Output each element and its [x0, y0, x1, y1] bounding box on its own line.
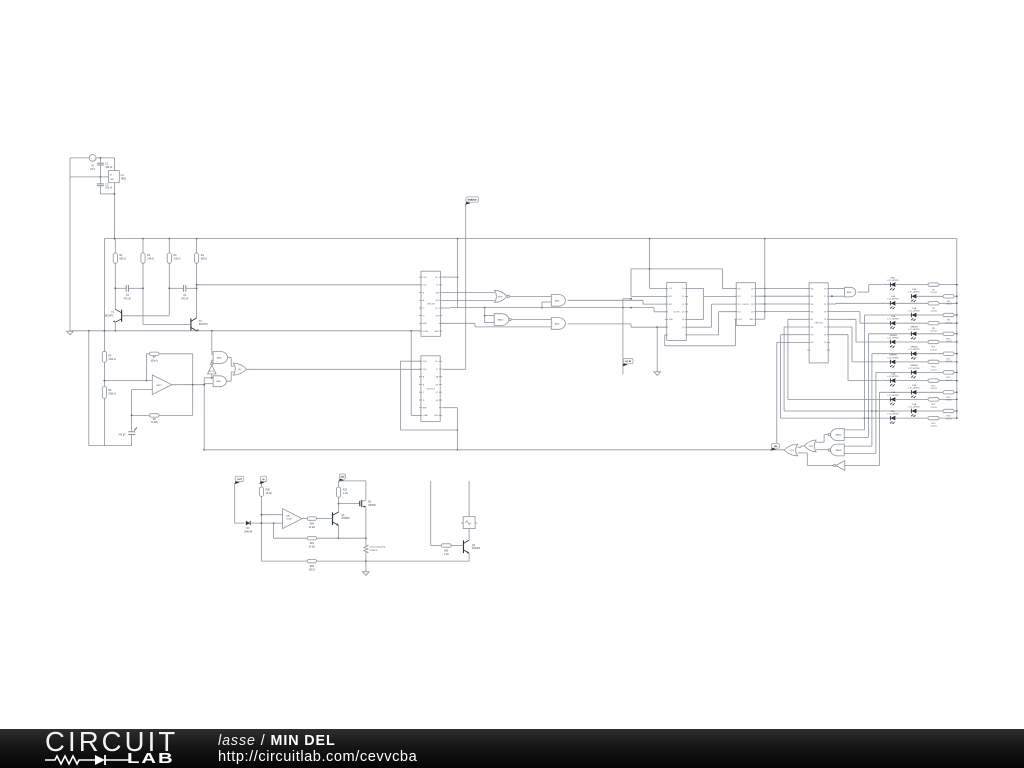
svg-text:D1A: D1A — [891, 372, 896, 375]
svg-text:L-TL-WYRD: L-TL-WYRD — [908, 349, 920, 351]
svg-text:R23: R23 — [343, 490, 348, 492]
svg-text:AND: AND — [217, 356, 222, 359]
svg-text:1 kΩ: 1 kΩ — [343, 493, 348, 495]
svg-text:L-TL-WYRD: L-TL-WYRD — [908, 329, 920, 331]
svg-text:NOR: NOR — [498, 296, 503, 298]
svg-text:R13: R13 — [932, 367, 937, 369]
svg-text:L-TL-WYRD: L-TL-WYRD — [887, 395, 899, 397]
svg-text:D1A: D1A — [912, 384, 917, 387]
svg-text:2.2k Ω: 2.2k Ω — [930, 331, 937, 333]
svg-text:Q3: Q3 — [682, 312, 685, 314]
svg-text:L-TL-WYRD: L-TL-WYRD — [887, 299, 899, 301]
svg-text:sp for bakhoring: sp for bakhoring — [370, 546, 386, 549]
svg-text:IRF530: IRF530 — [368, 505, 376, 507]
svg-text:C3: C3 — [126, 295, 130, 297]
svg-text:Y4: Y4 — [824, 319, 826, 321]
svg-text:470 uF: 470 uF — [124, 299, 132, 301]
svg-text:100k Ω: 100k Ω — [108, 359, 116, 361]
svg-text:2.2k Ω: 2.2k Ω — [945, 400, 952, 402]
svg-text:Q0: Q0 — [682, 288, 685, 290]
svg-text:Q0: Q0 — [751, 288, 754, 290]
svg-text:330 uF: 330 uF — [105, 167, 113, 169]
svg-text:ON: ON — [774, 446, 778, 448]
svg-text:100k Ω: 100k Ω — [108, 394, 116, 396]
svg-text:74HC14: 74HC14 — [742, 304, 750, 306]
svg-text:Y2: Y2 — [824, 304, 826, 306]
svg-text:24V: 24V — [341, 476, 345, 479]
svg-text:ENABLE: ENABLE — [468, 199, 478, 202]
svg-text:L-TL-WYRD: L-TL-WYRD — [908, 292, 920, 294]
svg-text:Y5: Y5 — [824, 327, 826, 329]
svg-text:C4: C4 — [183, 295, 187, 297]
svg-text:680 Ω: 680 Ω — [120, 259, 126, 261]
svg-text:D2: D2 — [738, 304, 740, 306]
svg-text:E2: E2 — [811, 327, 813, 329]
svg-text:R20: R20 — [266, 490, 271, 492]
svg-text:Q1: Q1 — [682, 296, 685, 298]
svg-text:L-TL-WYRD: L-TL-WYRD — [908, 368, 920, 370]
svg-text:10 kΩ: 10 kΩ — [266, 493, 272, 495]
svg-text:NAND: NAND — [497, 318, 503, 321]
svg-text:10 MΩ: 10 MΩ — [151, 422, 158, 424]
svg-text:2.2k Ω: 2.2k Ω — [930, 407, 937, 409]
svg-text:AND: AND — [555, 299, 560, 302]
svg-text:2.2k Ω: 2.2k Ω — [930, 311, 937, 313]
svg-text:R8: R8 — [947, 320, 951, 322]
svg-text:2.2k Ω: 2.2k Ω — [930, 426, 937, 428]
svg-text:1N4148: 1N4148 — [244, 531, 253, 533]
svg-text:R21: R21 — [310, 543, 315, 545]
svg-text:D0: D0 — [738, 288, 740, 290]
svg-text:A2: A2 — [811, 303, 813, 306]
svg-text:20 kΩ: 20 kΩ — [309, 547, 315, 549]
svg-text:10 kΩ: 10 kΩ — [309, 527, 315, 529]
svg-text:R6: R6 — [947, 301, 951, 303]
svg-text:Y6: Y6 — [824, 335, 826, 337]
svg-text:C1: C1 — [105, 164, 109, 166]
svg-text:R5: R5 — [108, 355, 112, 357]
svg-text:L-TL-WYRD: L-TL-WYRD — [887, 414, 899, 416]
svg-text:R5: R5 — [932, 289, 936, 291]
svg-text:R22: R22 — [310, 566, 315, 568]
svg-text:LOAD: LOAD — [423, 414, 429, 417]
svg-text:R24: R24 — [310, 524, 315, 526]
svg-text:Q2: Q2 — [682, 304, 685, 306]
svg-text:R16: R16 — [947, 397, 952, 399]
svg-text:NOT1: NOT1 — [209, 371, 214, 373]
svg-text:M1: M1 — [368, 502, 372, 504]
svg-text:Y7: Y7 — [824, 342, 826, 344]
svg-text:6.966 Ω: 6.966 Ω — [370, 550, 378, 552]
svg-text:470 pF: 470 pF — [118, 434, 126, 436]
svg-text:200 Ω: 200 Ω — [309, 569, 315, 571]
svg-text:L-TL-WYRD: L-TL-WYRD — [887, 319, 899, 321]
svg-text:2.2k Ω: 2.2k Ω — [945, 322, 952, 324]
svg-text:L-TL-WYRD: L-TL-WYRD — [887, 357, 899, 359]
svg-text:NAND: NAND — [836, 449, 842, 452]
svg-text:CMP1: CMP1 — [156, 385, 162, 387]
svg-text:Q1: Q1 — [342, 515, 346, 517]
svg-text:GND: GND — [110, 179, 115, 181]
svg-text:R12: R12 — [947, 358, 952, 360]
svg-text:A3: A3 — [811, 310, 813, 313]
svg-text:D1A: D1A — [912, 403, 917, 406]
svg-text:R18: R18 — [947, 416, 952, 418]
svg-text:OUT: OUT — [237, 479, 242, 481]
svg-text:2.2k Ω: 2.2k Ω — [945, 418, 952, 420]
svg-text:3.9k Ω: 3.9k Ω — [174, 259, 181, 261]
svg-text:74HC595: 74HC595 — [814, 323, 823, 325]
svg-text:2.2k Ω: 2.2k Ω — [945, 304, 952, 306]
svg-text:R7: R7 — [932, 308, 936, 310]
svg-text:2.2k Ω: 2.2k Ω — [930, 369, 937, 371]
svg-text:R3: R3 — [174, 255, 178, 257]
svg-text:D1A: D1A — [912, 288, 917, 291]
svg-text:AND: AND — [555, 322, 560, 325]
svg-text:AC IN: AC IN — [625, 360, 631, 363]
svg-text:L-TL-WYRD: L-TL-WYRD — [887, 280, 899, 282]
svg-text:7805: 7805 — [121, 178, 127, 181]
svg-text:R9: R9 — [932, 328, 936, 330]
svg-text:R1: R1 — [120, 255, 124, 257]
svg-text:D1: D1 — [247, 528, 251, 530]
svg-text:2.2k Ω: 2.2k Ω — [930, 292, 937, 294]
svg-text:Q3: Q3 — [751, 311, 754, 313]
svg-text:R10: R10 — [947, 339, 952, 341]
svg-text:+: + — [154, 380, 156, 382]
svg-text:Vcc: Vcc — [435, 361, 438, 363]
svg-text:AND: AND — [847, 291, 852, 294]
svg-text:C2: C2 — [105, 184, 109, 186]
svg-text:OR: OR — [238, 369, 242, 371]
svg-text:2.2k Ω: 2.2k Ω — [930, 388, 937, 390]
svg-text:-: - — [154, 391, 155, 393]
svg-text:2N3904: 2N3904 — [472, 548, 481, 550]
svg-text:L-TL-WYRD: L-TL-WYRD — [908, 310, 920, 312]
svg-text:R25: R25 — [444, 551, 449, 553]
svg-text:Vcc: Vcc — [435, 277, 438, 279]
svg-text:TL082: TL082 — [286, 519, 293, 521]
svg-text:NAND: NAND — [836, 434, 842, 437]
svg-text:470 uF: 470 uF — [181, 299, 189, 301]
svg-text:100 uF: 100 uF — [105, 188, 113, 190]
svg-text:74HC163: 74HC163 — [426, 388, 435, 390]
svg-text:Y0: Y0 — [824, 288, 826, 290]
svg-text:100k Ω: 100k Ω — [151, 361, 159, 363]
svg-text:R19: R19 — [932, 423, 937, 425]
svg-text:R2: R2 — [147, 255, 151, 257]
svg-text:D1: D1 — [738, 296, 740, 298]
svg-text:R11: R11 — [932, 347, 937, 349]
svg-text:D1A: D1A — [891, 315, 896, 318]
svg-text:OA1: OA1 — [286, 514, 291, 517]
svg-text:R6: R6 — [108, 390, 112, 392]
svg-text:Q2: Q2 — [751, 304, 754, 306]
svg-text:R15: R15 — [932, 385, 937, 387]
svg-text:1 kΩ: 1 kΩ — [444, 554, 449, 556]
svg-text:2.2k Ω: 2.2k Ω — [945, 341, 952, 343]
svg-text:680 Ω: 680 Ω — [201, 259, 207, 261]
svg-text:AND: AND — [216, 380, 221, 383]
svg-text:BC547C: BC547C — [105, 314, 114, 317]
svg-text:2.2k Ω: 2.2k Ω — [945, 380, 952, 382]
svg-text:24 V: 24 V — [90, 168, 95, 171]
svg-text:Y1: Y1 — [824, 296, 826, 298]
svg-text:R4: R4 — [201, 255, 205, 257]
svg-text:E3: E3 — [811, 335, 813, 337]
svg-text:74HC163: 74HC163 — [426, 304, 435, 306]
svg-text:L-TL-WYRD: L-TL-WYRD — [908, 406, 920, 408]
svg-text:D3: D3 — [738, 311, 740, 313]
svg-text:2N3904: 2N3904 — [342, 518, 351, 520]
svg-text:L-TL-WYRD: L-TL-WYRD — [908, 388, 920, 390]
svg-text:Q4: Q4 — [682, 319, 685, 321]
svg-text:E4: E4 — [811, 342, 813, 344]
svg-text:GND: GND — [749, 319, 754, 321]
svg-text:D1A: D1A — [912, 307, 917, 310]
svg-text:R14: R14 — [947, 377, 952, 379]
svg-text:CLR: CLR — [423, 361, 427, 363]
svg-text:R7: R7 — [153, 357, 157, 359]
svg-text:Q2: Q2 — [472, 545, 476, 547]
svg-text:Q5: Q5 — [682, 327, 685, 329]
svg-text:GND: GND — [669, 319, 674, 321]
svg-text:BC547C: BC547C — [199, 323, 208, 326]
svg-text:R8: R8 — [153, 419, 157, 421]
svg-text:2.2k Ω: 2.2k Ω — [930, 349, 937, 351]
svg-text:E1: E1 — [811, 319, 813, 321]
svg-text:CLR: CLR — [423, 277, 427, 279]
svg-text:A1: A1 — [811, 295, 813, 298]
svg-text:GND: GND — [434, 415, 439, 417]
svg-text:LOAD: LOAD — [423, 330, 429, 333]
svg-text:2.2k Ω: 2.2k Ω — [945, 361, 952, 363]
svg-text:R17: R17 — [932, 404, 937, 406]
svg-text:L-TL-WYRD: L-TL-WYRD — [887, 376, 899, 378]
svg-text:GND: GND — [434, 331, 439, 333]
svg-text:L-TL-WYRD: L-TL-WYRD — [887, 337, 899, 339]
svg-text:3.9k Ω: 3.9k Ω — [147, 259, 154, 261]
svg-text:Q1: Q1 — [751, 296, 754, 298]
svg-text:4017B: 4017B — [674, 311, 680, 313]
svg-text:Y3: Y3 — [824, 311, 826, 313]
svg-text:D1A: D1A — [891, 295, 896, 298]
svg-text:A0: A0 — [811, 287, 813, 290]
svg-text:D1A: D1A — [891, 391, 896, 394]
